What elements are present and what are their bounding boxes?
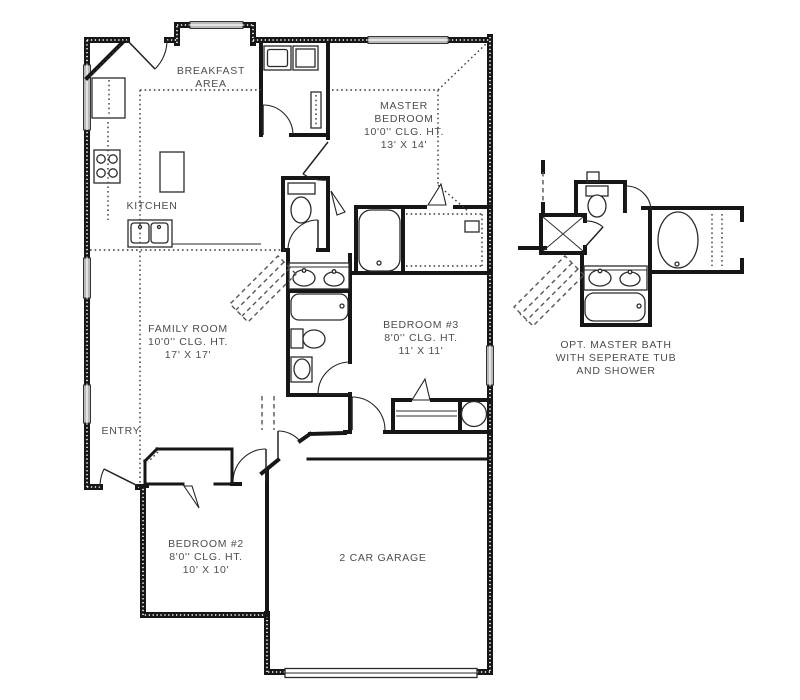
opt-master-bath-label: OPT. MASTER BATH: [560, 339, 671, 351]
kitchen-fixtures: [92, 78, 261, 247]
front-door-leaf: [104, 469, 140, 487]
bedroom2-closet-door-leaf: [184, 486, 199, 508]
toilet-bowl-icon: [303, 330, 325, 348]
breakfast-area-label: BREAKFAST: [177, 65, 245, 77]
closets-utility: [396, 402, 487, 427]
bedroom3-closet-door-leaf: [412, 379, 430, 400]
shower-x-icon: [543, 217, 583, 251]
master-bedroom-label: MASTER: [380, 100, 428, 112]
master-bedroom-label: 13' X 14': [381, 139, 428, 151]
floor-plan-page: BREAKFAST AREA KITCHEN MASTER BEDROOM 10…: [0, 0, 800, 700]
bedroom2-label: 10' X 10': [183, 564, 230, 576]
family-room-label: FAMILY ROOM: [148, 323, 228, 335]
opt-master-bath-label: WITH SEPERATE TUB: [556, 352, 677, 364]
closet-shelf-box: [465, 221, 479, 232]
refrigerator-icon: [92, 78, 125, 118]
family-room-label: 10'0'' CLG. HT.: [148, 336, 228, 348]
floor-plan-canvas: BREAKFAST AREA KITCHEN MASTER BEDROOM 10…: [0, 0, 800, 700]
bedroom2-label: 8'0'' CLG. HT.: [169, 551, 243, 563]
master-entry-door-leaf: [303, 142, 328, 174]
bedroom3-label: BEDROOM #3: [383, 319, 459, 331]
opt-master-bath-label: AND SHOWER: [576, 365, 655, 377]
master-toilet-door-arc: [288, 220, 318, 250]
hall-bath-door-arc: [318, 362, 350, 394]
kitchen-island: [160, 152, 184, 192]
master-closet-door-leaf: [428, 184, 446, 205]
breakfast-door-leaf: [127, 40, 155, 69]
bedroom3-label: 8'0'' CLG. HT.: [384, 332, 458, 344]
garage-label: 2 CAR GARAGE: [339, 552, 426, 564]
stove-icon: [94, 150, 120, 183]
hall-bath-fixtures: [291, 294, 348, 382]
bedroom3-door-arc: [352, 397, 385, 430]
master-bedroom-label: 10'0'' CLG. HT.: [364, 126, 444, 138]
opt-toilet-bowl-icon: [588, 195, 606, 217]
laundry-fixtures: [264, 46, 321, 128]
bedroom2-door-arc: [233, 449, 266, 482]
water-heater-icon: [462, 402, 487, 427]
opt-master-bath-detail: [514, 162, 742, 326]
walkin-closet-shelf-lines: [406, 214, 482, 266]
garage-entry-door-arc: [278, 431, 300, 441]
hall-tub-icon: [291, 294, 348, 320]
breakfast-door-arc: [155, 40, 167, 69]
garden-tub-icon: [658, 212, 698, 268]
opt-linen-shelves: [712, 214, 722, 266]
kitchen-label: KITCHEN: [127, 200, 178, 212]
hall-cased-opening: [262, 396, 274, 430]
bedroom2-label: BEDROOM #2: [168, 538, 244, 550]
opt-dashed-feature: [514, 256, 584, 326]
bedroom3-label: 11' X 11': [399, 345, 444, 357]
shower-door-arc: [585, 221, 603, 227]
bedroom3-closet-shelves: [396, 411, 457, 416]
toilet-bowl-icon: [291, 197, 311, 223]
family-room-label: 17' X 17': [165, 349, 212, 361]
toilet-tank-icon: [291, 329, 303, 348]
bedroom2-closet-walls: [145, 449, 232, 484]
master-bath-corridor-door-leaf: [331, 191, 345, 215]
garage-door: [285, 669, 477, 678]
master-bedroom-label: BEDROOM: [374, 113, 433, 125]
opt-separate-tub-icon: [585, 293, 645, 321]
toilet-tank-icon: [288, 183, 315, 194]
laundry-door-arc: [263, 105, 293, 135]
entry-label: ENTRY: [102, 425, 141, 437]
breakfast-area-label: AREA: [195, 78, 226, 90]
